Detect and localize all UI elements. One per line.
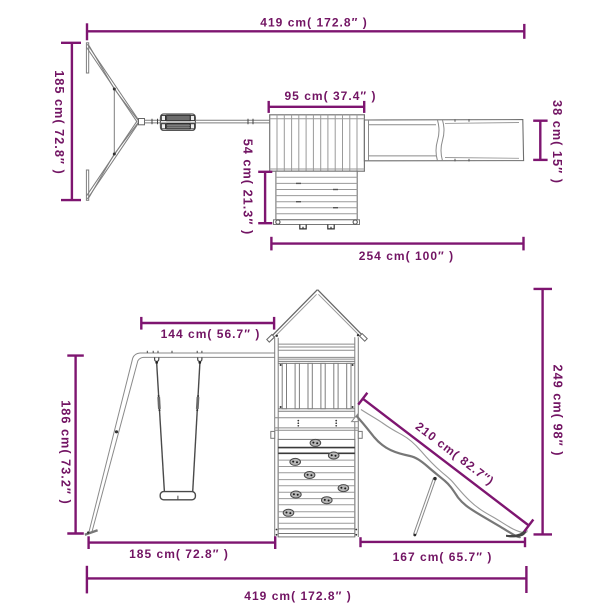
svg-text:419 cm( 172.8″ ): 419 cm( 172.8″ ) [260,16,367,30]
svg-text:186 cm( 73.2″ ): 186 cm( 73.2″ ) [59,400,73,505]
svg-text:38 cm( 15″ ): 38 cm( 15″ ) [550,100,564,184]
svg-text:144 cm( 56.7″ ): 144 cm( 56.7″ ) [161,327,261,341]
svg-text:95 cm( 37.4″ ): 95 cm( 37.4″ ) [284,89,376,103]
svg-text:419 cm( 172.8″ ): 419 cm( 172.8″ ) [244,589,351,603]
svg-text:249 cm( 98″ ): 249 cm( 98″ ) [551,365,565,457]
svg-text:54 cm( 21.3″ ): 54 cm( 21.3″ ) [240,139,254,236]
svg-text:185 cm( 72.8″ ): 185 cm( 72.8″ ) [129,547,229,561]
svg-text:167 cm( 65.7″ ): 167 cm( 65.7″ ) [393,550,493,564]
svg-text:254 cm( 100″ ): 254 cm( 100″ ) [359,249,454,263]
svg-text:185 cm( 72.8″ ): 185 cm( 72.8″ ) [52,70,66,175]
